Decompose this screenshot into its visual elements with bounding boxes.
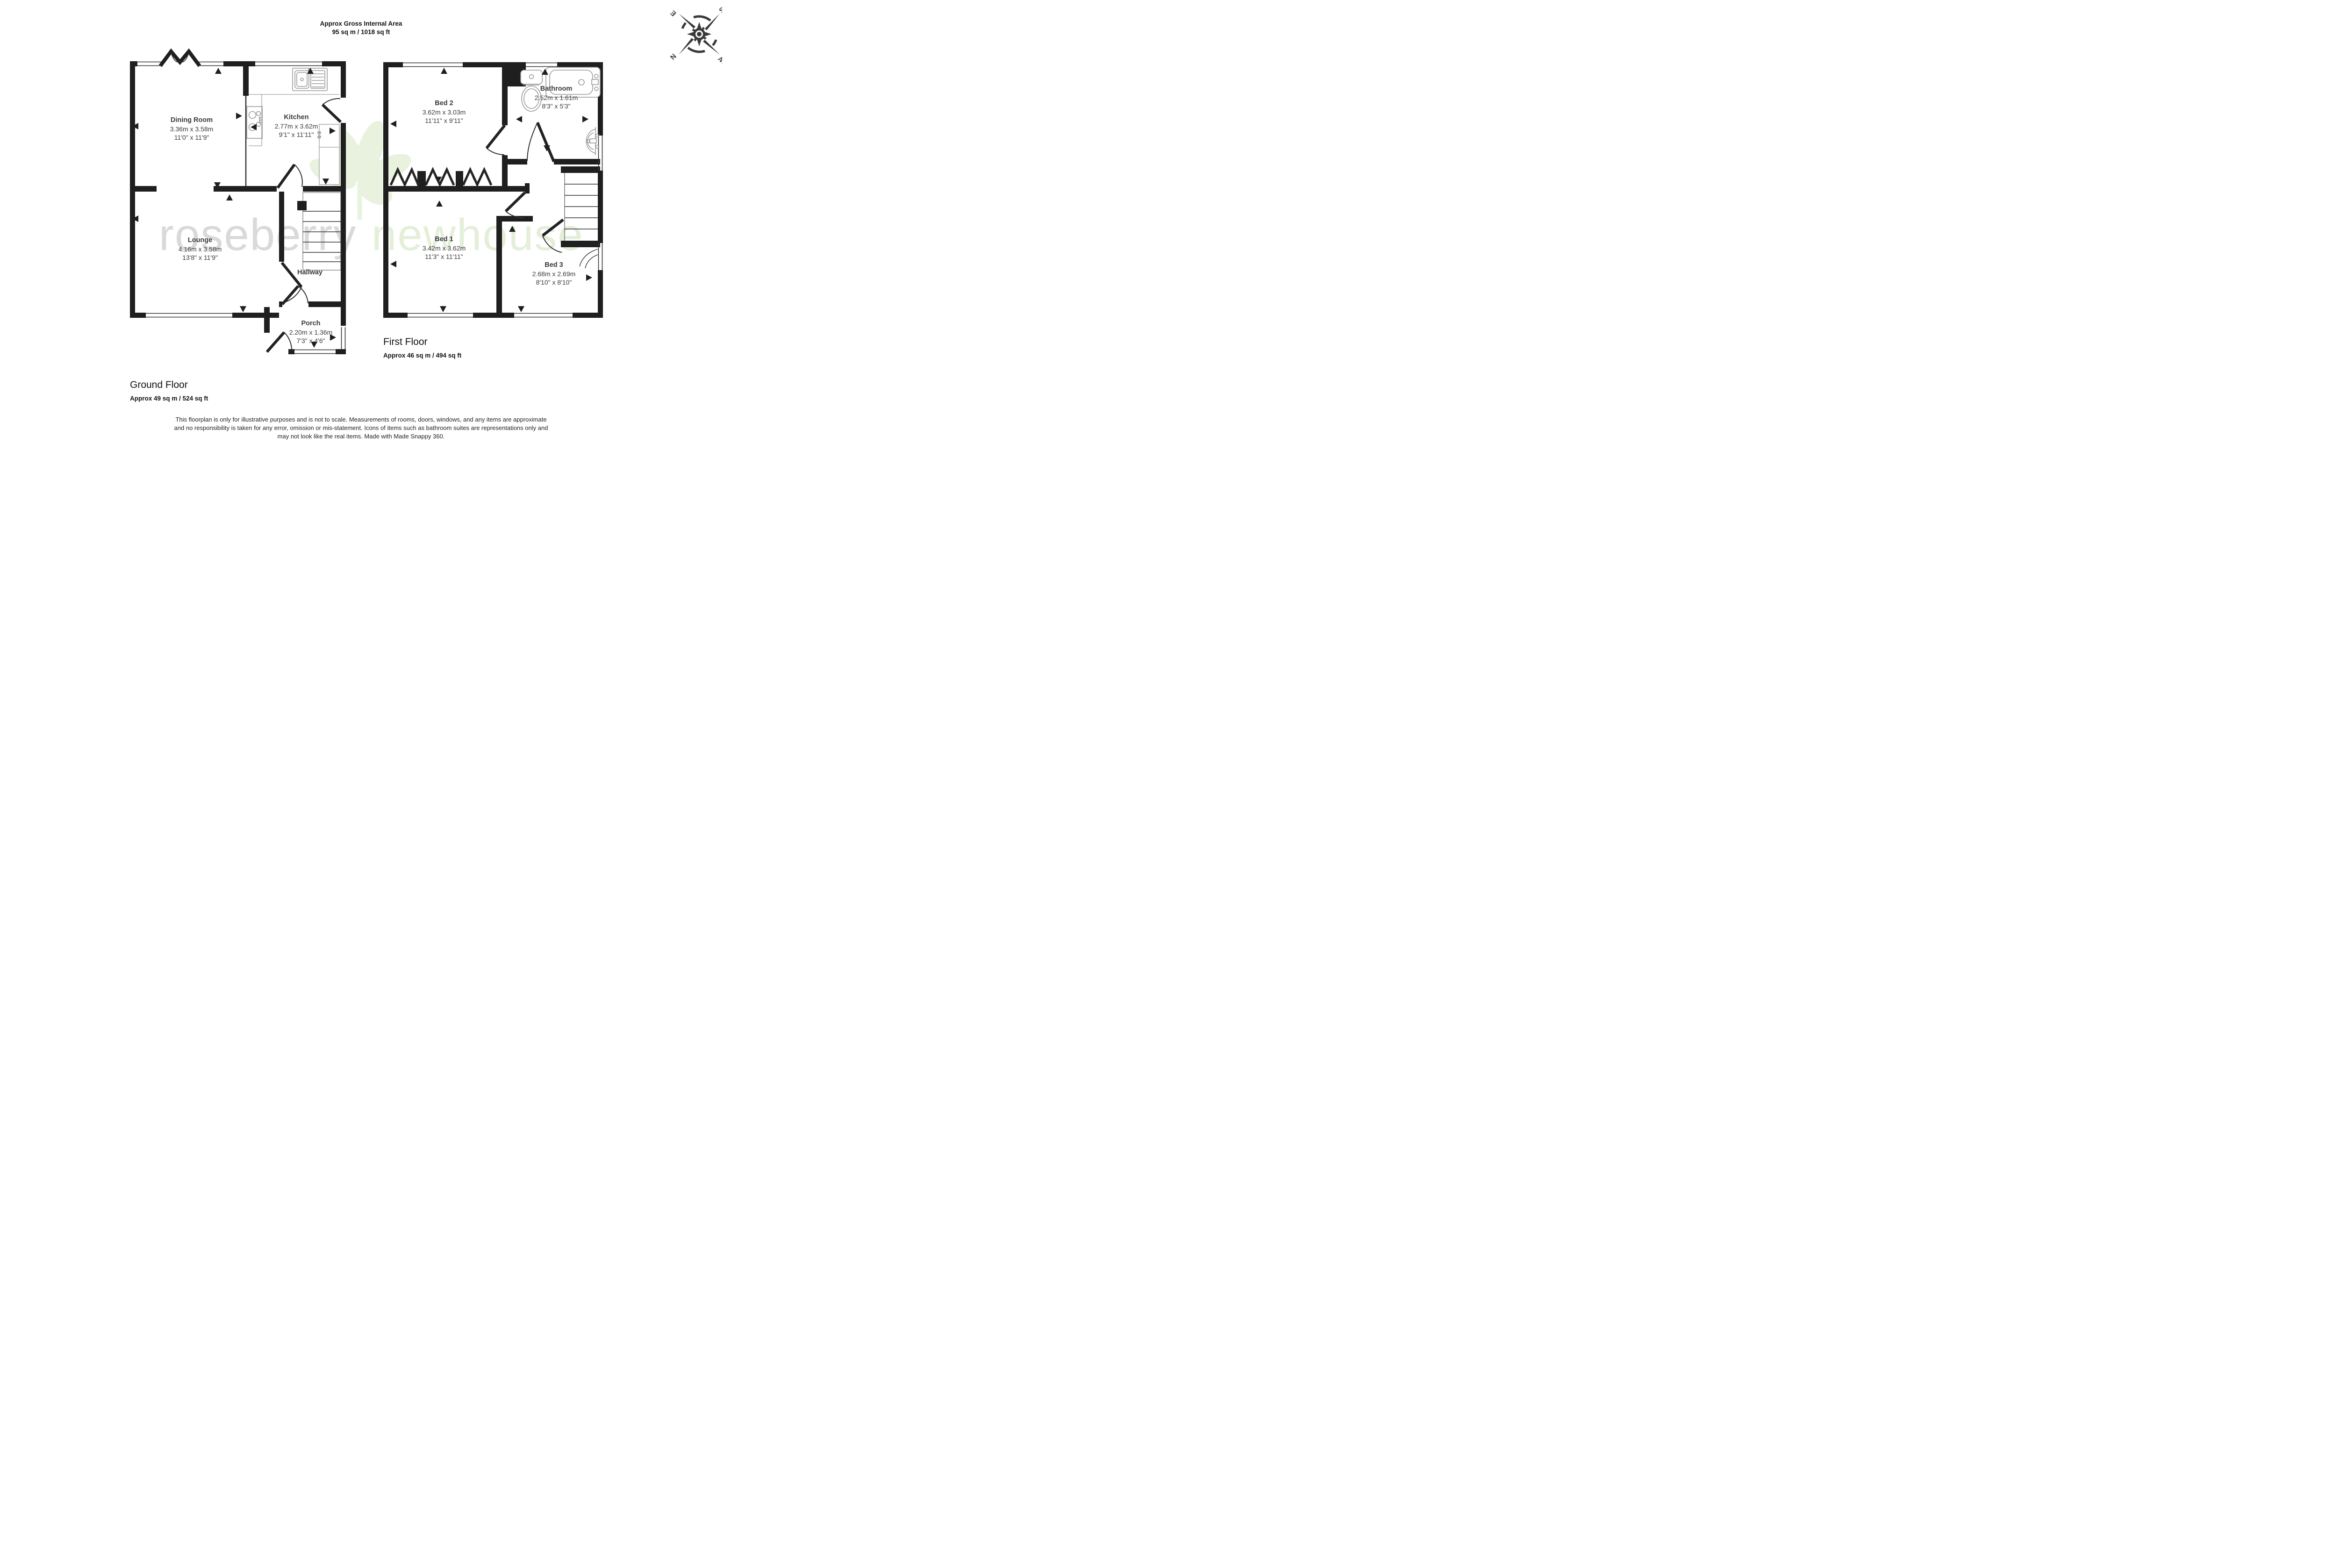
window-kitchen (255, 62, 322, 66)
window-lounge (146, 314, 232, 317)
room-label-bed1: Bed 1 3.42m x 3.62m 11'3" x 11'11" (423, 235, 466, 261)
gross-area-value: 95 sq m / 1018 sq ft (320, 28, 402, 36)
basin-icon (586, 127, 599, 155)
window-curtain-arcs (580, 249, 598, 268)
door-bed2 (487, 125, 505, 155)
room-label-bed2: Bed 2 3.62m x 3.03m 11'11" x 9'11" (423, 99, 466, 125)
window-porch-side (342, 327, 345, 349)
window-porch-front (294, 350, 336, 354)
disclaimer: This floorplan is only for illustrative … (151, 415, 572, 441)
floorplan-svg: E S W N (0, 0, 722, 444)
compass-w: W (717, 55, 722, 65)
door-bed3 (543, 220, 563, 252)
compass-icon: E S W N (669, 6, 722, 65)
compass-n: N (669, 52, 678, 62)
window-dining-right (199, 62, 223, 66)
disclaimer-line-3: may not look like the real items. Made w… (151, 432, 572, 441)
disclaimer-line-1: This floorplan is only for illustrative … (151, 415, 572, 424)
room-label-bed3: Bed 3 2.68m x 2.69m 8'10" x 8'10" (532, 261, 576, 287)
door-bed1 (506, 193, 525, 218)
window-bed1 (408, 314, 473, 317)
room-label-hallway: Hallway (297, 268, 323, 277)
hob-icon (247, 107, 262, 138)
stairs-ground-floor (297, 193, 341, 270)
window-bed2 (403, 63, 463, 67)
compass-s: S (717, 6, 722, 14)
gross-area-title: Approx Gross Internal Area (320, 20, 402, 28)
door-kitchen-hall (278, 165, 302, 188)
bay-window (160, 51, 200, 66)
room-label-lounge: Lounge 4.16m x 3.58m 13'8" x 11'9" (179, 236, 222, 262)
disclaimer-line-2: and no responsibility is taken for any e… (151, 424, 572, 432)
window-landing (599, 136, 602, 171)
room-label-dining: Dining Room 3.36m x 3.58m 11'0" x 11'9" (170, 116, 214, 142)
floorplan-page: roseberry newhouse (0, 0, 722, 444)
ground-floor-area: Approx 49 sq m / 524 sq ft (130, 395, 208, 402)
compass-e: E (669, 9, 678, 18)
window-bathroom (526, 63, 557, 67)
room-label-porch: Porch 2.20m x 1.36m 7'3" x 4'6" (289, 319, 333, 345)
door-front (267, 332, 292, 352)
bathroom-fixtures (521, 67, 600, 155)
window-dining-left (136, 62, 161, 66)
door-hall-porch (282, 286, 308, 304)
room-label-bathroom: Bathroom 2.52m x 1.61m 8'3" x 5'3" (535, 85, 578, 111)
ground-floor-windows (136, 62, 345, 354)
window-bed3-bottom (514, 314, 573, 317)
first-floor-area: Approx 46 sq m / 494 sq ft (383, 352, 461, 359)
ground-floor-walls (130, 61, 346, 354)
stairs-first-floor (565, 173, 598, 268)
ground-floor-plan (130, 51, 346, 354)
door-kitchen-back (323, 99, 341, 122)
page-title: Approx Gross Internal Area 95 sq m / 101… (320, 20, 402, 36)
first-floor-title: First Floor (383, 337, 428, 348)
room-label-kitchen: Kitchen 2.77m x 3.62m 9'1" x 11'11" (275, 113, 318, 139)
ground-floor-title: Ground Floor (130, 379, 188, 391)
door-bathroom (527, 122, 554, 162)
